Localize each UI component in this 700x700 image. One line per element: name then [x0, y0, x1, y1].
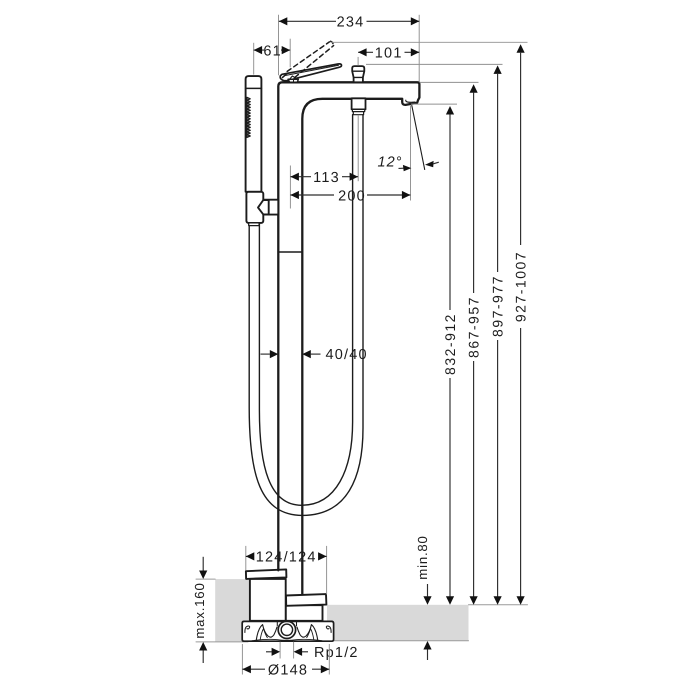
- svg-text:113: 113: [313, 170, 340, 186]
- svg-text:40/40: 40/40: [326, 347, 368, 363]
- svg-text:897-977: 897-977: [490, 275, 506, 337]
- svg-text:101: 101: [375, 46, 403, 62]
- svg-text:max.160: max.160: [192, 582, 207, 638]
- svg-text:832-912: 832-912: [442, 313, 458, 375]
- svg-text:927-1007: 927-1007: [513, 251, 529, 322]
- svg-text:867-957: 867-957: [466, 296, 482, 358]
- svg-text:234: 234: [337, 15, 365, 31]
- svg-text:Rp1/2: Rp1/2: [314, 645, 359, 661]
- svg-text:124/124: 124/124: [256, 550, 317, 566]
- svg-text:61: 61: [263, 43, 282, 59]
- svg-text:Ø148: Ø148: [268, 662, 308, 678]
- svg-text:min.80: min.80: [415, 535, 430, 579]
- svg-text:200: 200: [338, 188, 366, 204]
